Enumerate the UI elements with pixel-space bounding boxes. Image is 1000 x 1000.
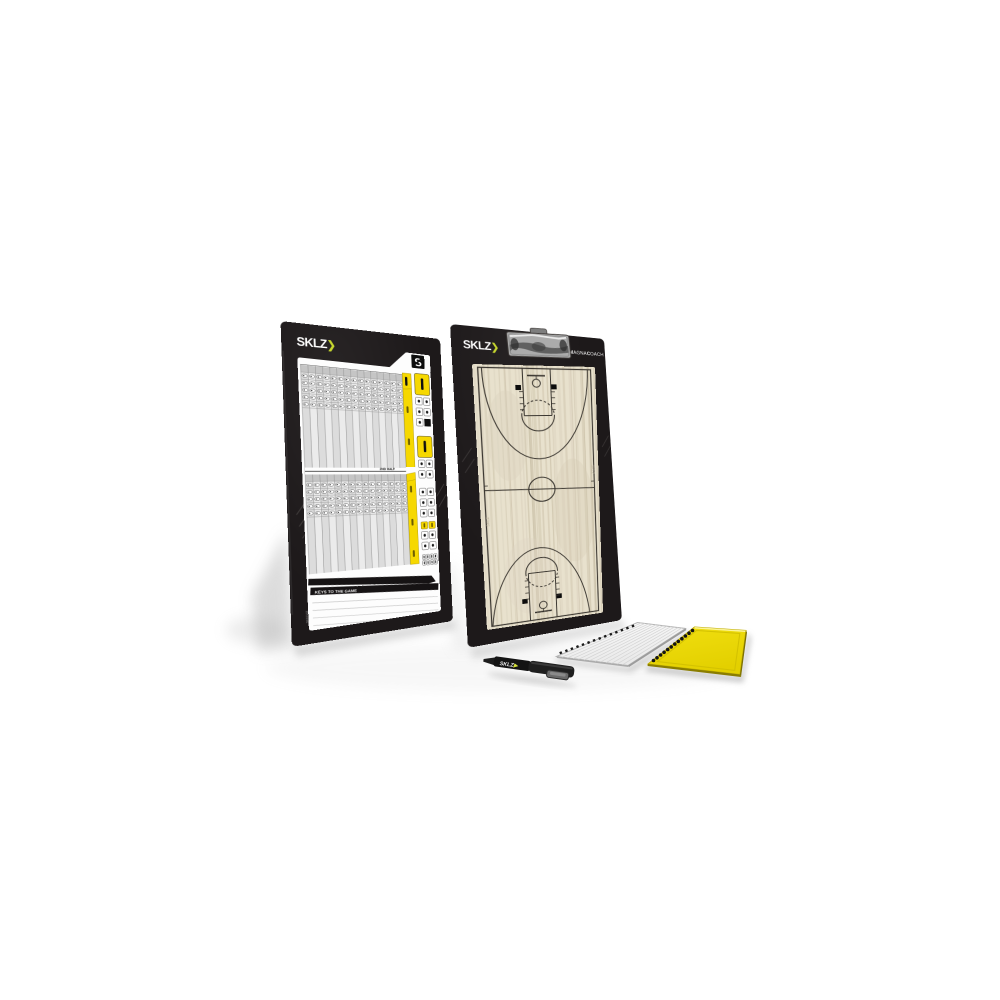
- svg-text:SKLZ▶: SKLZ▶: [499, 661, 519, 670]
